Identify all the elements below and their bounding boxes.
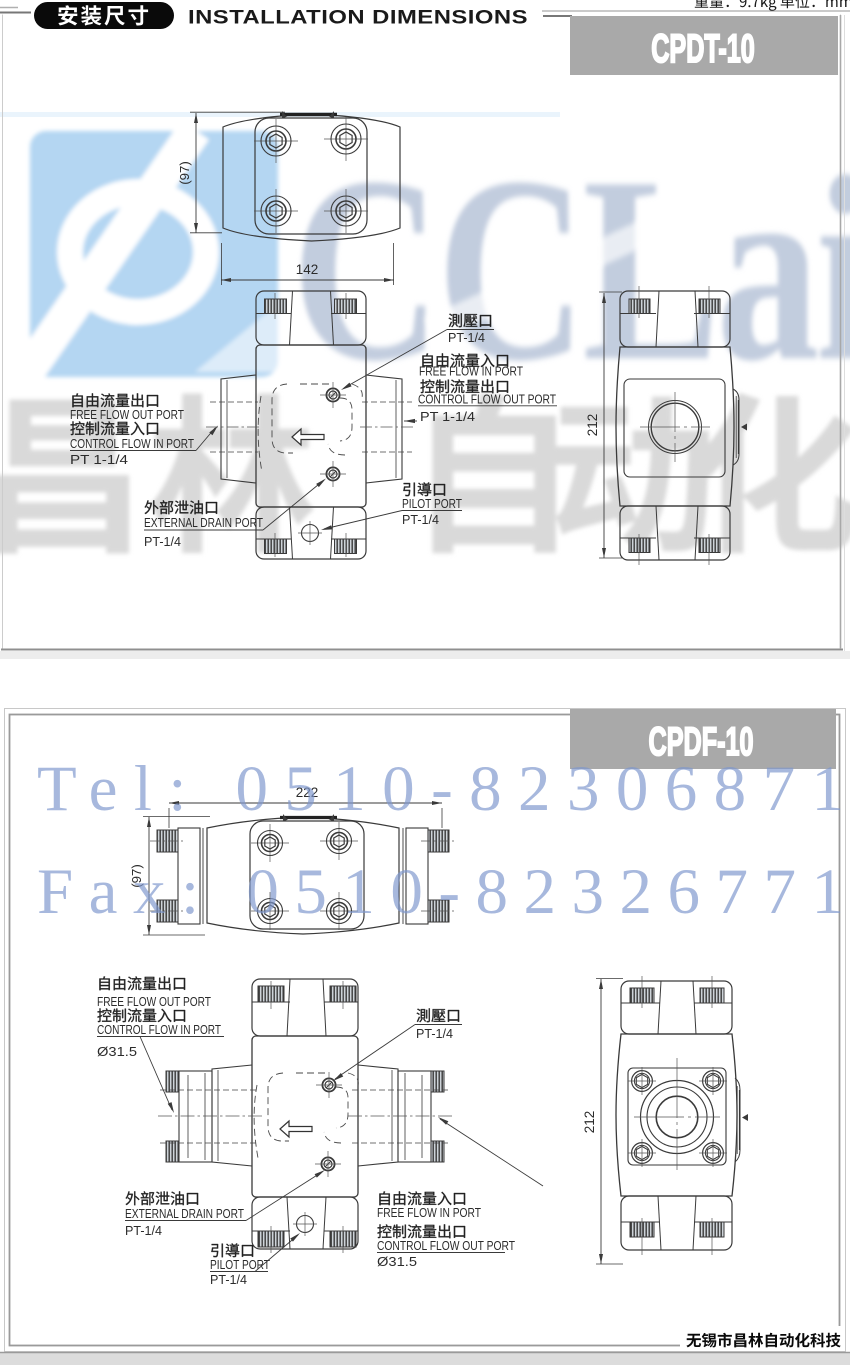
svg-text:Ø31.5: Ø31.5	[377, 1254, 417, 1269]
svg-text:Ø31.5: Ø31.5	[97, 1044, 137, 1059]
svg-text:PT 1-1/4: PT 1-1/4	[420, 409, 475, 424]
svg-text:CONTROL FLOW IN PORT: CONTROL FLOW IN PORT	[70, 436, 194, 451]
svg-text:CONTROL FLOW OUT PORT: CONTROL FLOW OUT PORT	[418, 392, 556, 407]
svg-text:EXTERNAL DRAIN PORT: EXTERNAL DRAIN PORT	[125, 1206, 244, 1221]
svg-text:142: 142	[296, 262, 319, 277]
svg-text:CPDT-10: CPDT-10	[651, 27, 755, 71]
svg-text:PT-1/4: PT-1/4	[416, 1026, 453, 1041]
svg-text:FREE FLOW IN PORT: FREE FLOW IN PORT	[419, 364, 523, 379]
svg-text:PT-1/4: PT-1/4	[210, 1272, 247, 1287]
svg-text:(97): (97)	[177, 161, 192, 184]
svg-text:Fax: 0510-82326771: Fax: 0510-82326771	[37, 856, 844, 928]
svg-text:PT-1/4: PT-1/4	[448, 330, 485, 345]
svg-text:INSTALLATION DIMENSIONS: INSTALLATION DIMENSIONS	[188, 7, 528, 29]
svg-text:PT-1/4: PT-1/4	[402, 512, 439, 527]
svg-text:FREE FLOW IN PORT: FREE FLOW IN PORT	[377, 1205, 481, 1220]
svg-text:PT-1/4: PT-1/4	[125, 1223, 162, 1238]
svg-text:EXTERNAL DRAIN PORT: EXTERNAL DRAIN PORT	[144, 515, 263, 530]
svg-text:212: 212	[582, 1111, 597, 1134]
svg-text:PILOT PORT: PILOT PORT	[402, 496, 462, 511]
svg-text:PT 1-1/4: PT 1-1/4	[70, 452, 128, 467]
svg-text:FREE FLOW OUT PORT: FREE FLOW OUT PORT	[97, 994, 211, 1009]
svg-text:CONTROL FLOW IN PORT: CONTROL FLOW IN PORT	[97, 1022, 221, 1037]
svg-text:PT-1/4: PT-1/4	[144, 534, 181, 549]
svg-text:212: 212	[585, 414, 600, 437]
svg-text:PILOT PORT: PILOT PORT	[210, 1257, 270, 1272]
svg-text:FREE FLOW OUT PORT: FREE FLOW OUT PORT	[70, 407, 184, 422]
svg-text:CONTROL FLOW OUT PORT: CONTROL FLOW OUT PORT	[377, 1238, 515, 1253]
